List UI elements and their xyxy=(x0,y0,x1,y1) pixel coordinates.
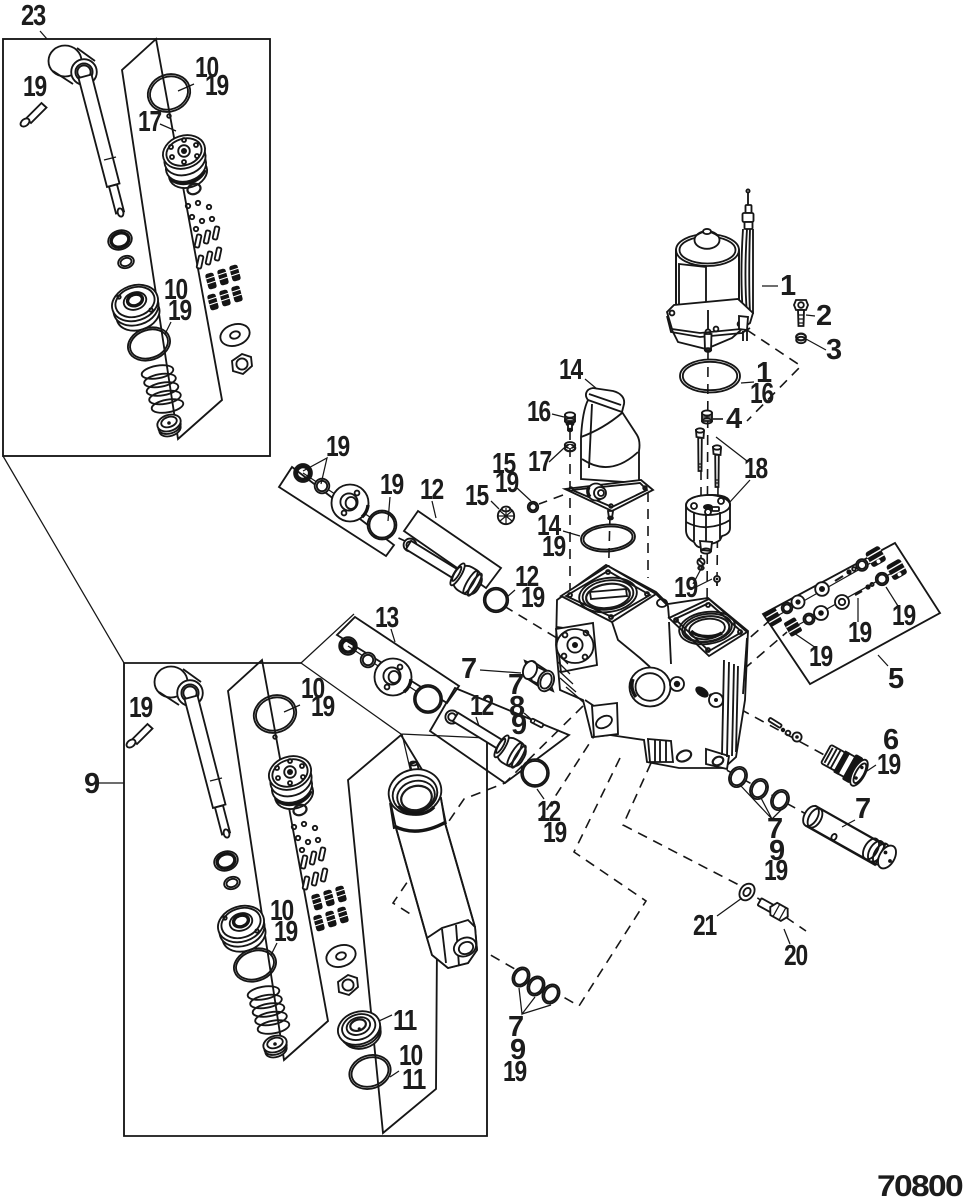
svg-text:2: 2 xyxy=(816,300,831,332)
svg-text:19: 19 xyxy=(23,71,47,103)
svg-text:17: 17 xyxy=(528,446,551,478)
svg-text:19: 19 xyxy=(892,600,916,632)
svg-text:17: 17 xyxy=(138,106,161,138)
svg-text:14: 14 xyxy=(559,354,583,386)
svg-text:19: 19 xyxy=(764,855,788,887)
svg-text:16: 16 xyxy=(527,396,551,428)
svg-text:19: 19 xyxy=(205,70,229,102)
svg-text:19: 19 xyxy=(495,467,519,499)
svg-text:19: 19 xyxy=(326,431,350,463)
svg-text:19: 19 xyxy=(877,749,901,781)
svg-text:19: 19 xyxy=(521,582,545,614)
svg-text:19: 19 xyxy=(542,531,566,563)
svg-text:1: 1 xyxy=(780,270,796,302)
svg-text:18: 18 xyxy=(744,453,768,485)
svg-text:15: 15 xyxy=(465,480,489,512)
svg-text:20: 20 xyxy=(784,940,807,972)
svg-text:19: 19 xyxy=(848,617,872,649)
svg-text:9: 9 xyxy=(84,768,100,800)
svg-text:13: 13 xyxy=(375,602,399,634)
svg-text:70800: 70800 xyxy=(877,1170,963,1198)
svg-text:11: 11 xyxy=(402,1064,426,1096)
svg-text:7: 7 xyxy=(855,793,870,825)
svg-text:12: 12 xyxy=(470,690,493,722)
svg-text:3: 3 xyxy=(826,334,842,366)
svg-text:11: 11 xyxy=(393,1005,417,1037)
svg-text:19: 19 xyxy=(168,295,192,327)
svg-text:4: 4 xyxy=(726,403,742,435)
svg-text:19: 19 xyxy=(543,817,567,849)
svg-text:21: 21 xyxy=(693,910,717,942)
svg-text:7: 7 xyxy=(461,653,476,685)
svg-text:16: 16 xyxy=(750,378,774,410)
svg-text:19: 19 xyxy=(380,469,404,501)
svg-text:5: 5 xyxy=(888,663,904,695)
svg-text:19: 19 xyxy=(503,1056,527,1088)
svg-text:23: 23 xyxy=(21,0,46,32)
